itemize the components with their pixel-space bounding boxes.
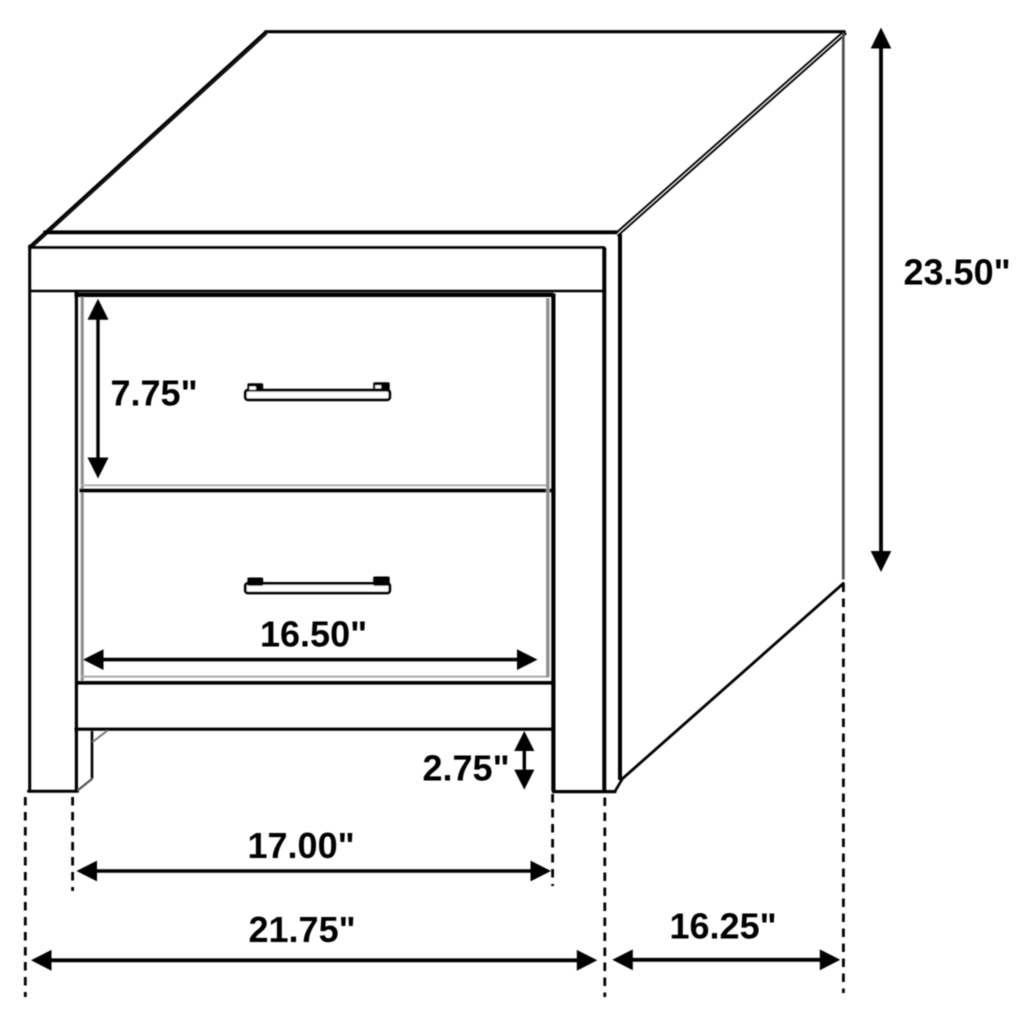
svg-text:7.75": 7.75" <box>111 373 198 414</box>
svg-text:21.75": 21.75" <box>249 909 356 950</box>
svg-text:23.50": 23.50" <box>904 252 1011 293</box>
svg-text:17.00": 17.00" <box>248 825 355 866</box>
svg-text:16.50": 16.50" <box>260 614 367 655</box>
svg-text:2.75": 2.75" <box>423 748 510 789</box>
svg-text:16.25": 16.25" <box>670 906 777 947</box>
